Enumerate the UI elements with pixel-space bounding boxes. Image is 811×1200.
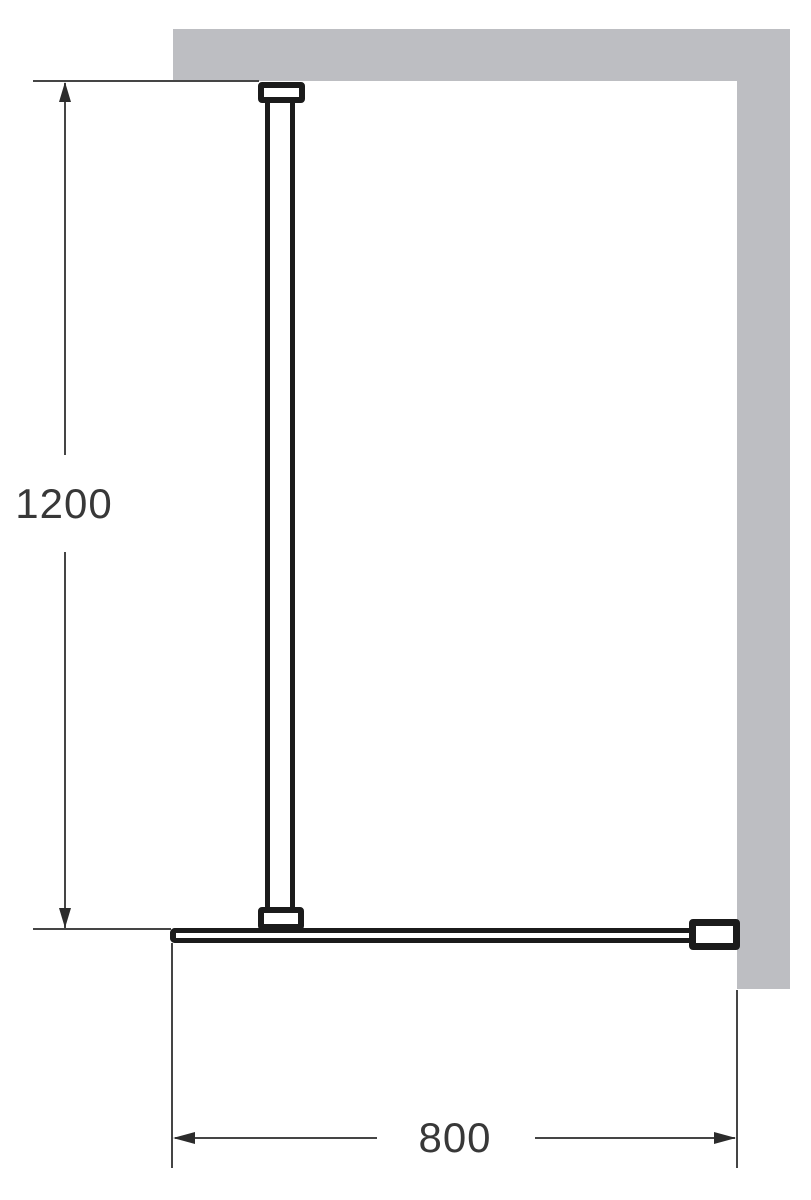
support-bar-foot-bracket (258, 907, 304, 930)
arrowhead-down-icon (59, 908, 71, 928)
dimension-label-height: 1200 (11, 483, 116, 525)
extension-line-bottom (33, 928, 171, 930)
arrowhead-up-icon (59, 82, 71, 102)
wall-top (173, 29, 790, 81)
arrowhead-left-icon (173, 1132, 195, 1144)
wall-mount-bracket (689, 919, 740, 950)
vertical-dimension-line-upper (64, 83, 66, 455)
arrowhead-right-icon (714, 1132, 736, 1144)
dimension-label-width: 800 (414, 1117, 495, 1159)
vertical-dimension-line-lower (64, 552, 66, 928)
horizontal-dimension-line-left (175, 1137, 377, 1139)
horizontal-dimension-line-right (535, 1137, 735, 1139)
extension-line-800-right (736, 990, 738, 1168)
wall-right (737, 81, 790, 989)
drawing-canvas: 1200 800 (0, 0, 811, 1200)
support-bar (265, 100, 295, 910)
ceiling-bracket (258, 82, 305, 103)
glass-panel (170, 928, 692, 943)
